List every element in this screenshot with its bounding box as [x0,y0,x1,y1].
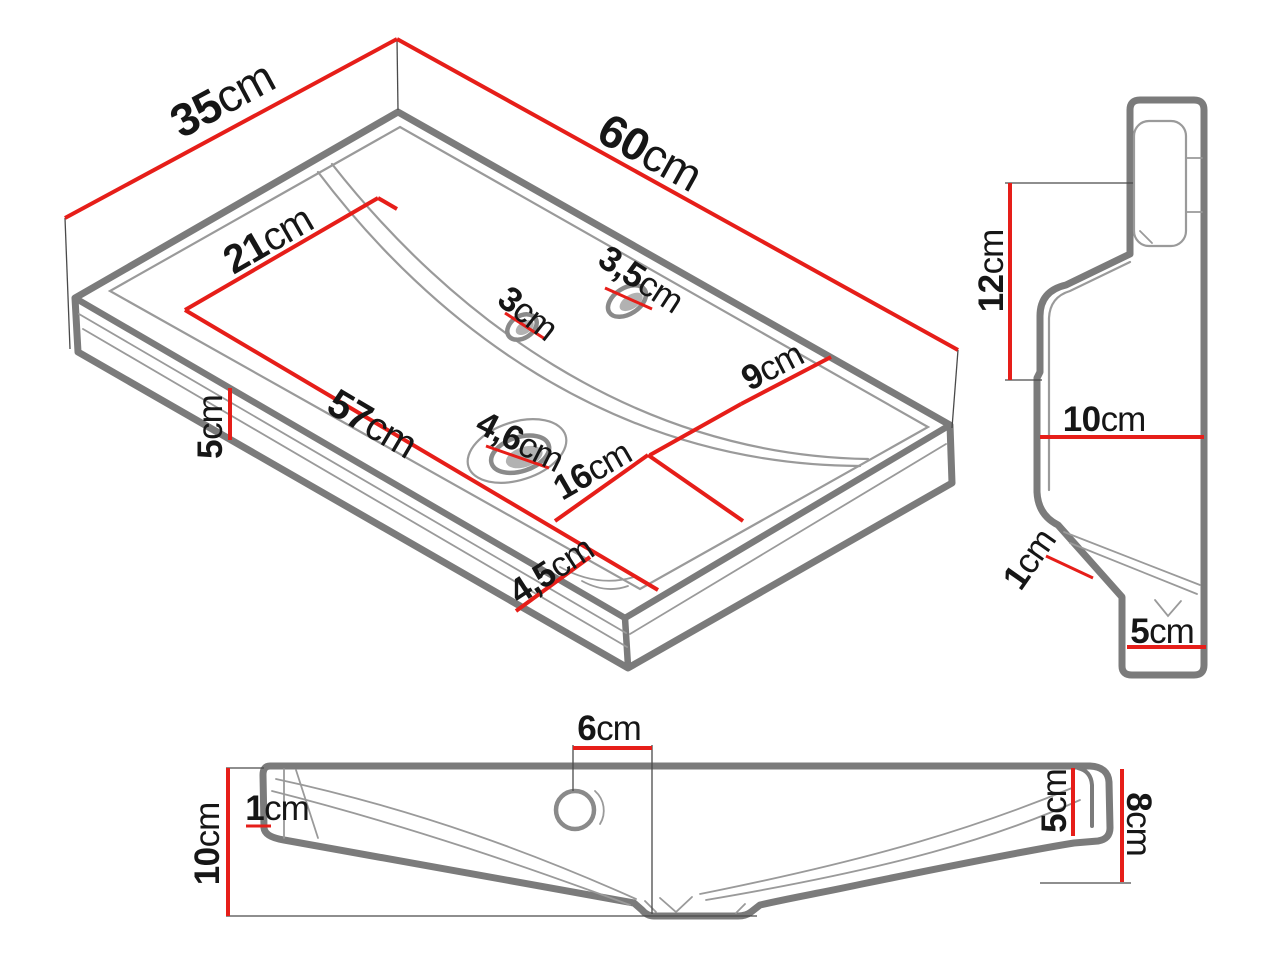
washbasin-dimension-drawing: 35cm 60cm 21cm 57cm 16cm 9cm 5cm 4,6cm 4… [0,0,1280,960]
dim-front-rim-label: 1cm [245,789,309,828]
dim-side-depth-label: 10cm [1063,400,1146,439]
front-corner-edge [625,618,628,666]
dim-front-right-recess-label: 5cm [1035,769,1074,833]
dim-side-bottom-label: 5cm [1130,612,1194,651]
dim-front-right-height-label: 8cm [1120,792,1159,856]
dim-iso-front-rim-label: 5cm [191,395,230,459]
front-faucet-hole [556,791,594,829]
dim-front-height-label: 10cm [188,803,227,886]
technical-drawing-page: 35cm 60cm 21cm 57cm 16cm 9cm 5cm 4,6cm 4… [0,0,1280,960]
dim-front-faucet-offset-label: 6cm [577,709,641,748]
dim-side-back-height-label: 12cm [972,230,1011,313]
